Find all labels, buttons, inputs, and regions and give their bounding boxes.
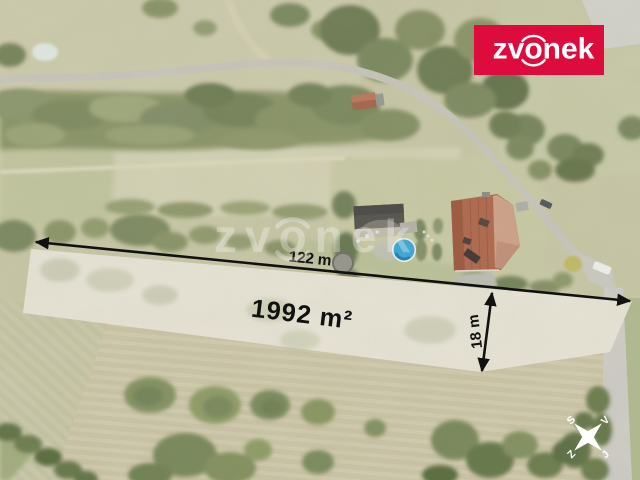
svg-text:zvonek: zvonek bbox=[214, 210, 418, 262]
